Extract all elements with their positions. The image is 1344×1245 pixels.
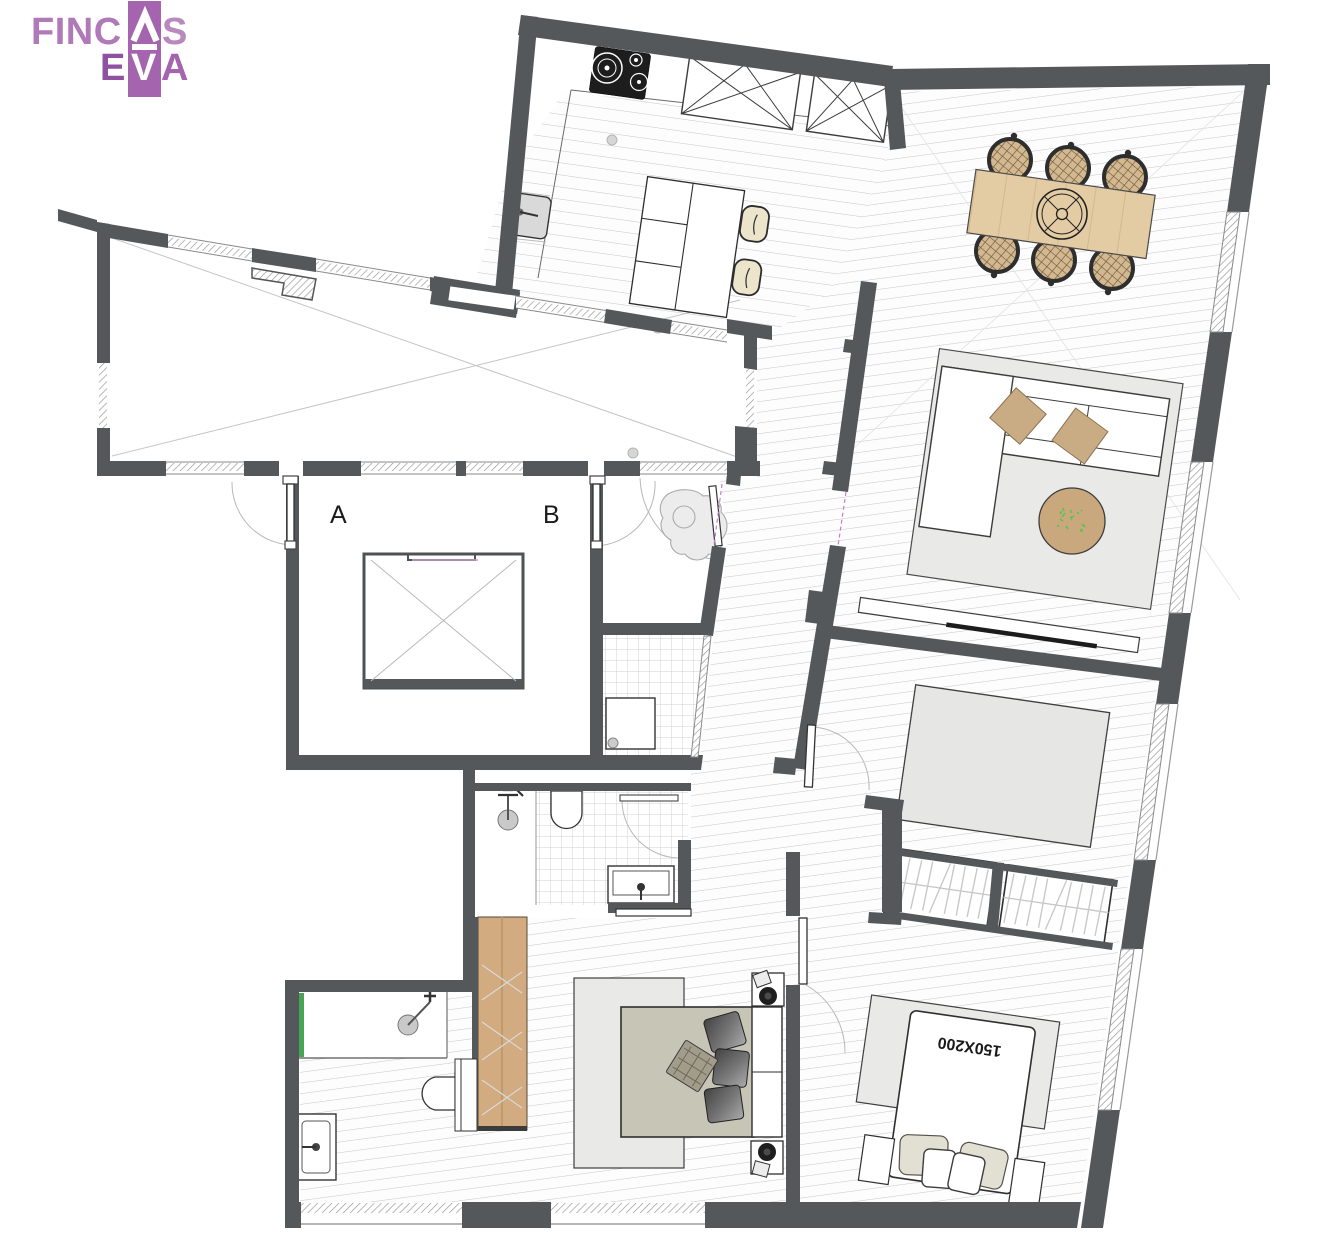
svg-text:V: V <box>131 47 157 89</box>
svg-text:A: A <box>330 501 347 529</box>
svg-text:E: E <box>100 47 125 89</box>
svg-text:B: B <box>543 501 560 529</box>
svg-text:A: A <box>161 47 188 89</box>
